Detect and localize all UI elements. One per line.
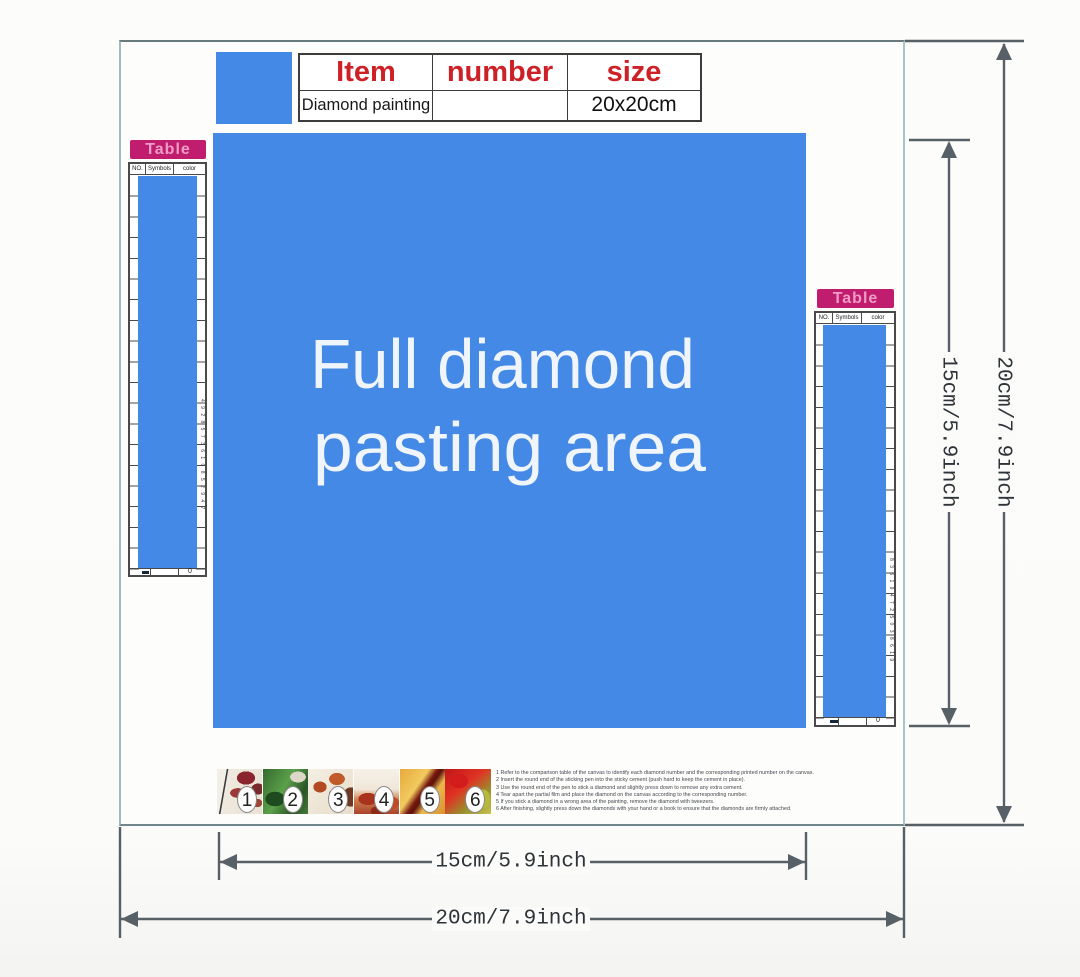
svg-text:20cm/7.9inch: 20cm/7.9inch <box>992 356 1015 507</box>
svg-text:20cm/7.9inch: 20cm/7.9inch <box>435 908 586 931</box>
svg-text:15cm/5.9inch: 15cm/5.9inch <box>435 851 586 874</box>
svg-text:15cm/5.9inch: 15cm/5.9inch <box>937 356 960 507</box>
